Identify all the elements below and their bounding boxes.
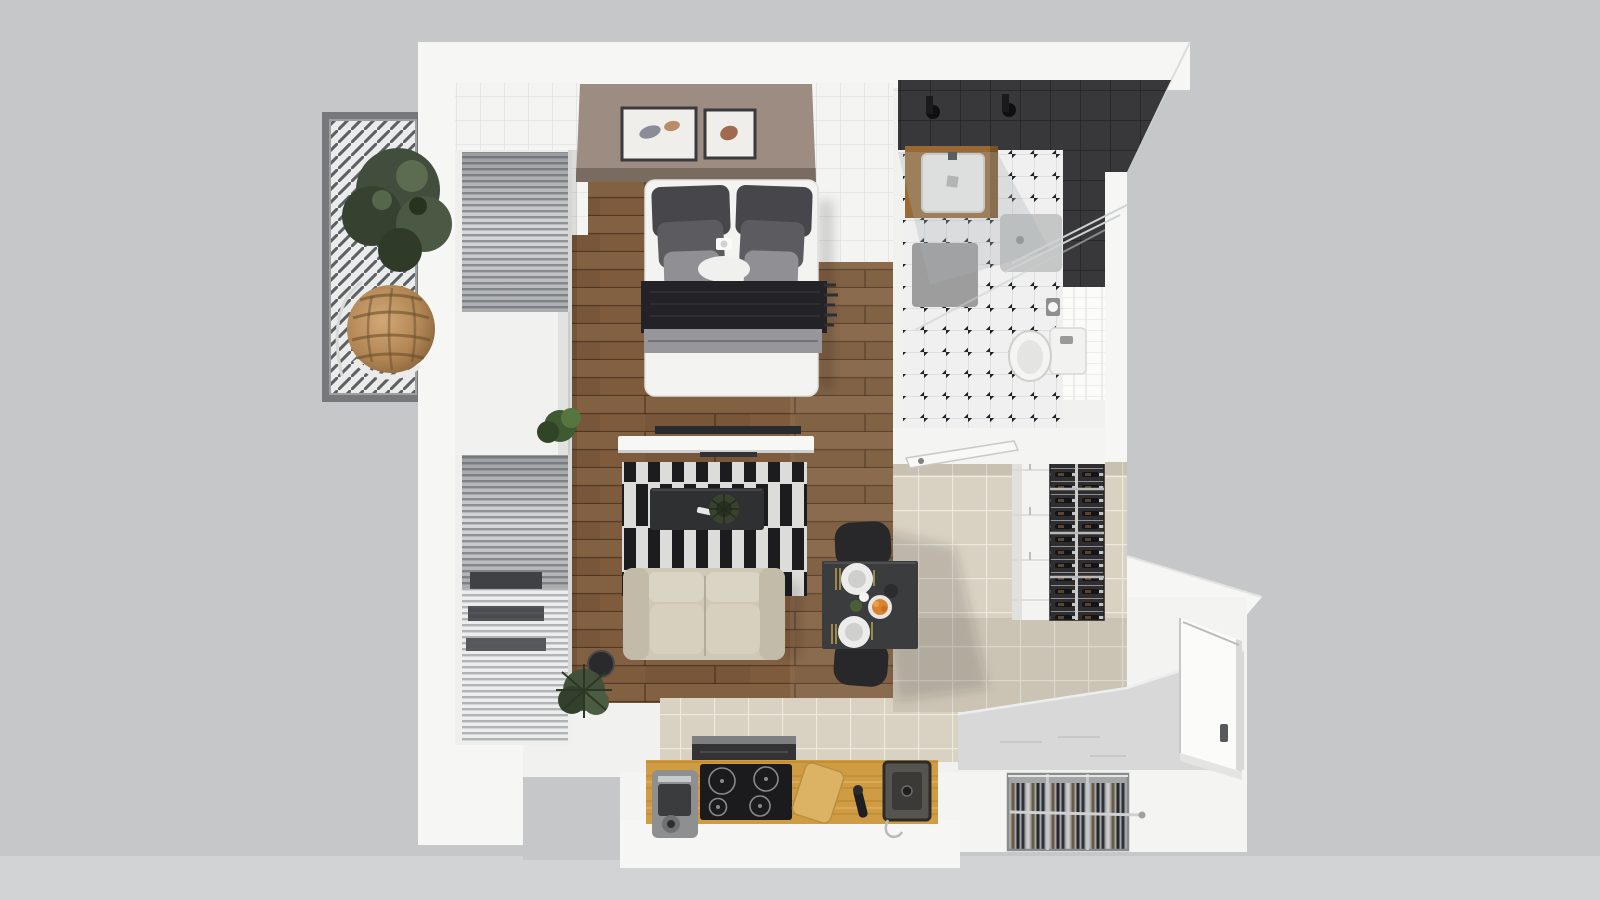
wardrobe-rack <box>1008 774 1146 850</box>
picture-frame-left <box>622 108 696 160</box>
wall-bottom-left <box>418 745 523 845</box>
bed <box>641 180 838 396</box>
window-blinds-middle <box>462 455 568 588</box>
window-frame-bar <box>470 572 542 589</box>
sofa-seat-cushion <box>650 604 704 654</box>
coffee-table <box>650 488 764 530</box>
sofa-armrest-right <box>759 568 785 660</box>
side-dish <box>884 584 898 598</box>
entry-door-handle <box>1220 724 1228 742</box>
bottom-notch <box>523 777 620 860</box>
window-blinds-top <box>462 152 568 312</box>
table-greenery <box>850 600 862 612</box>
coffee-machine <box>652 770 698 838</box>
cooktop <box>700 764 792 820</box>
sofa-back-cushion <box>648 572 704 602</box>
wine-rack <box>1050 446 1104 620</box>
tv-mount <box>700 452 757 457</box>
tv <box>655 426 801 434</box>
entry-door <box>1180 618 1242 780</box>
white-pillow <box>698 256 750 282</box>
picture-frame-right <box>705 110 755 158</box>
range-hood <box>692 736 796 763</box>
window-blinds-wall <box>455 150 577 745</box>
sofa <box>623 568 801 660</box>
window-blinds-bottom <box>462 572 568 742</box>
floor-plan-render <box>0 0 1600 900</box>
sofa-armrest-left <box>623 568 649 660</box>
tv-shelf <box>618 436 814 452</box>
blanket <box>641 281 838 353</box>
bathroom-door-handle <box>918 458 924 464</box>
toilet-paper-holder <box>1046 298 1060 316</box>
